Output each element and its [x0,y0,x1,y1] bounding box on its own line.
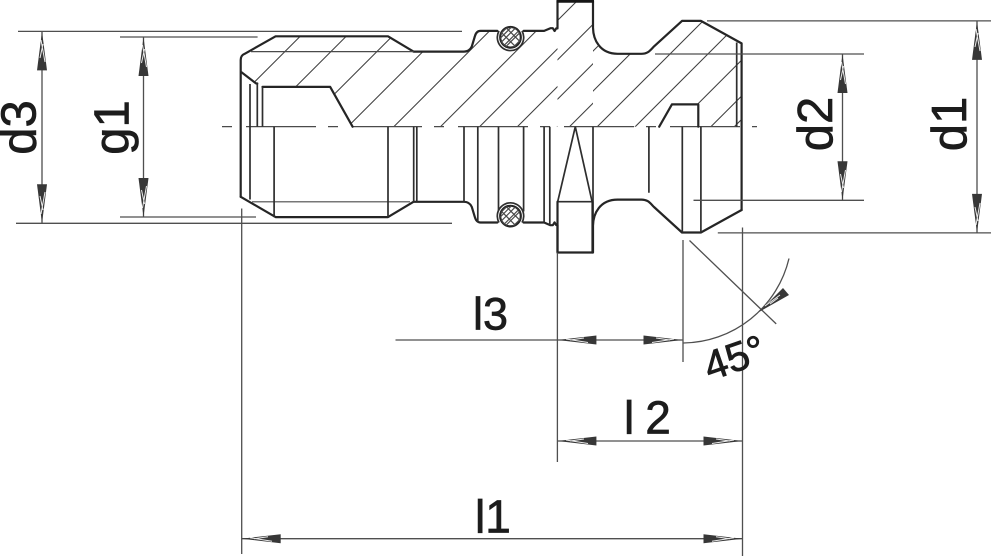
svg-text:d1: d1 [923,97,977,152]
svg-text:l3: l3 [473,289,508,340]
svg-text:d2: d2 [789,97,843,152]
svg-text:l1: l1 [475,491,511,543]
svg-text:d3: d3 [0,100,47,155]
svg-text:g1: g1 [86,100,140,155]
svg-text:l2: l2 [624,392,682,444]
